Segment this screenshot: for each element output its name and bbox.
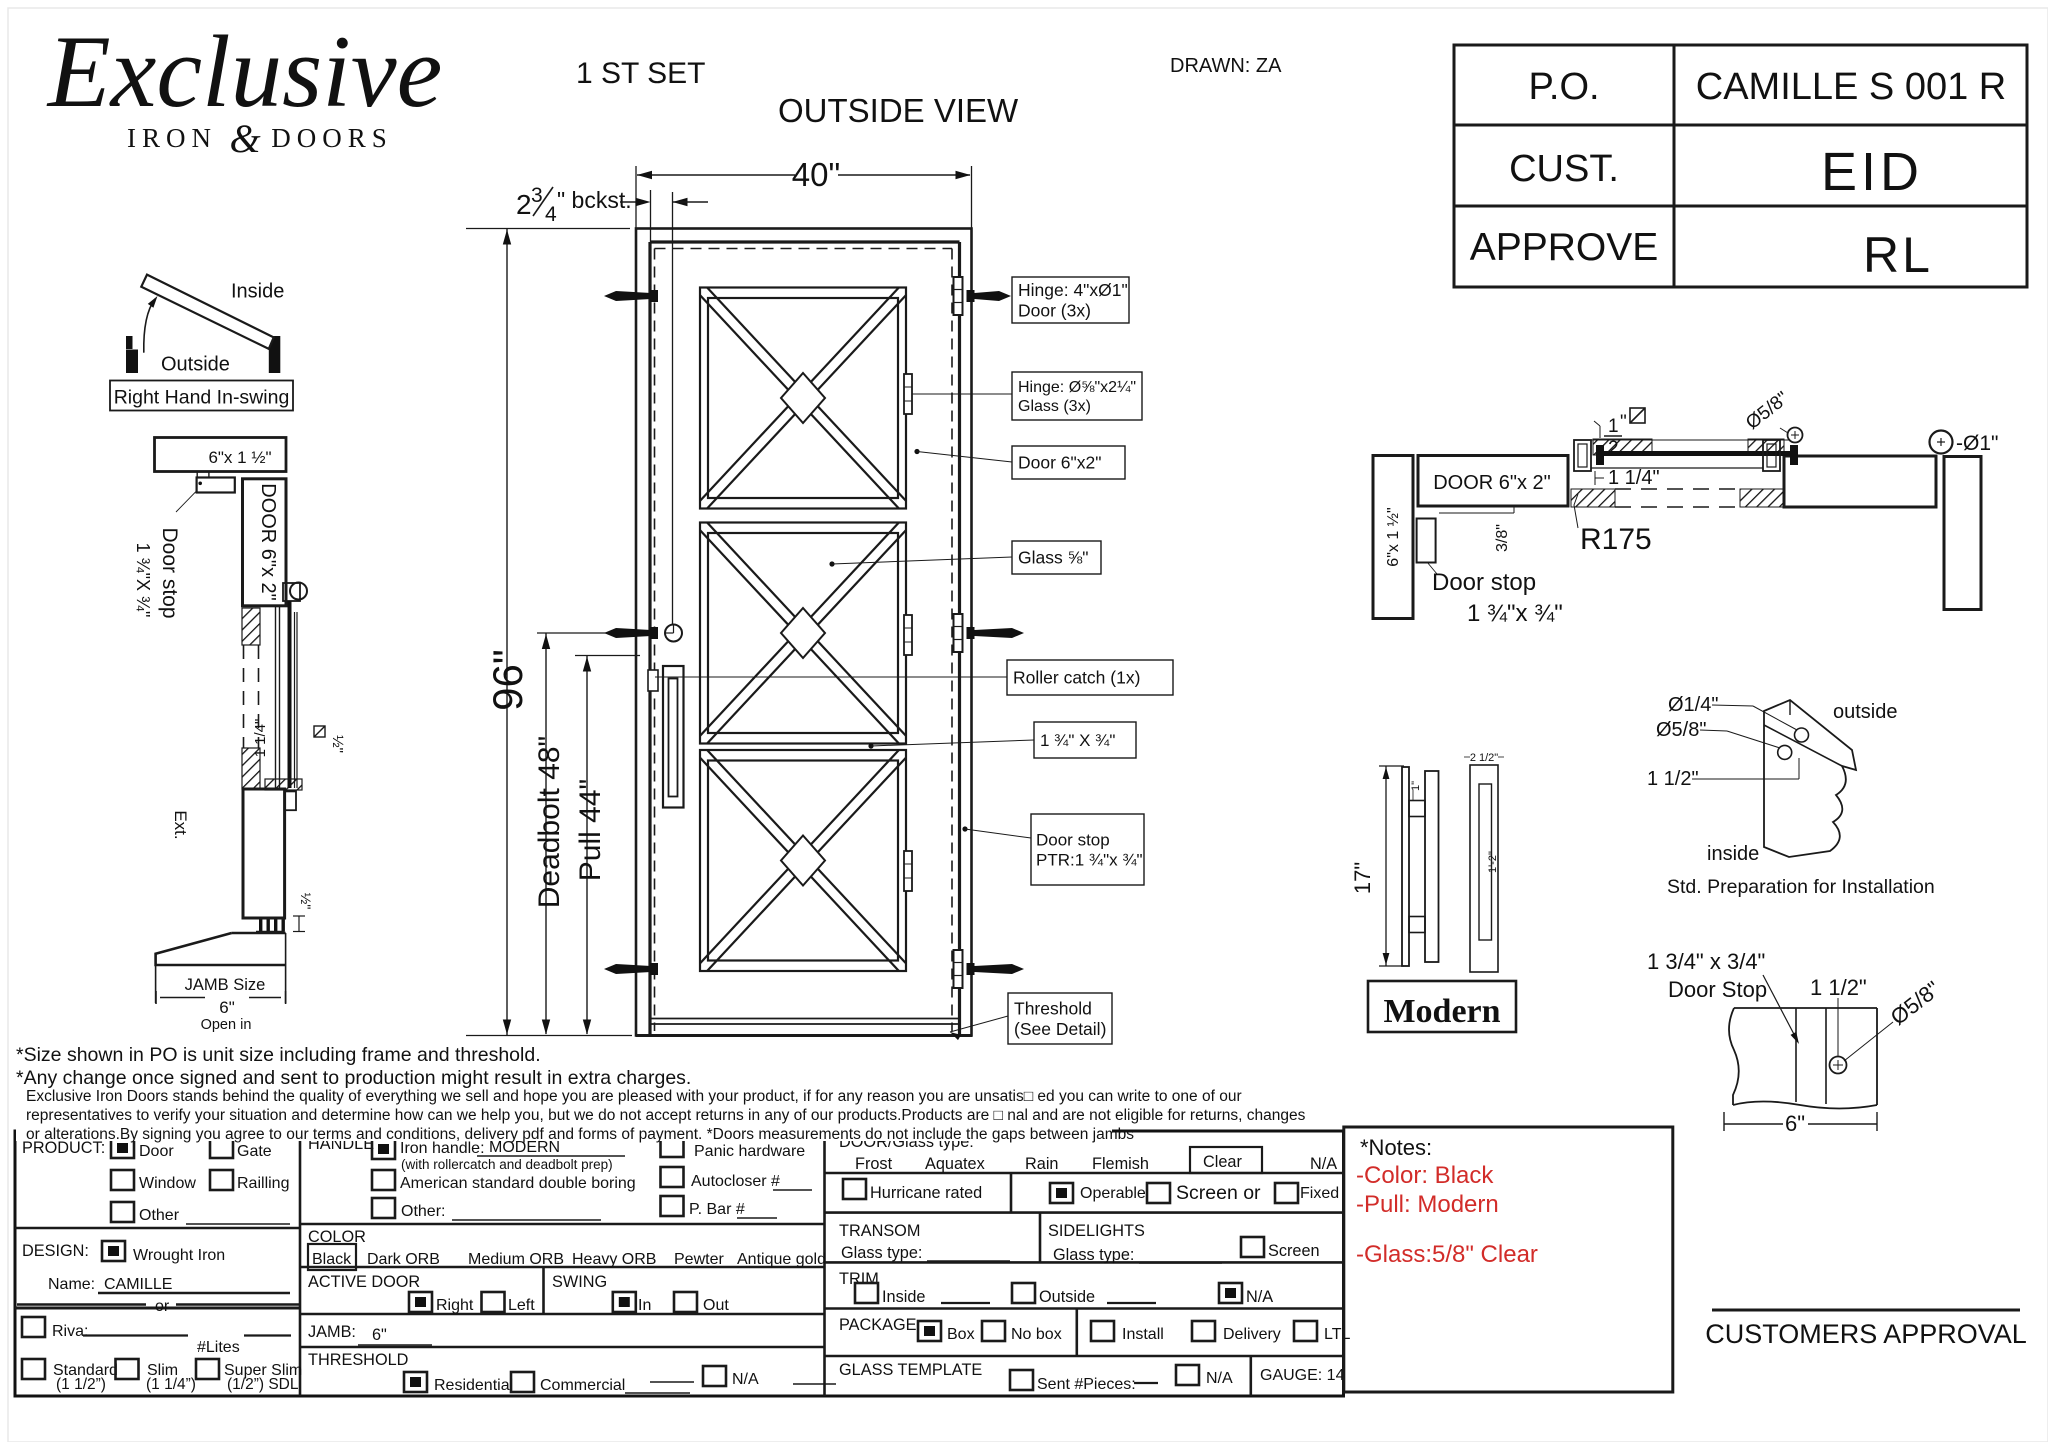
svg-text:1 1/4": 1 1/4" [1608, 467, 1660, 489]
svg-text:Hurricane rated: Hurricane rated [870, 1184, 982, 1202]
svg-text:DOORS: DOORS [271, 123, 393, 153]
svg-text:2: 2 [1608, 438, 1619, 459]
svg-text:R175: R175 [1580, 523, 1652, 556]
svg-text:½": ½" [329, 735, 346, 753]
svg-text:40": 40" [792, 156, 840, 193]
svg-text:Inside: Inside [882, 1288, 925, 1306]
svg-text:inside: inside [1707, 843, 1759, 865]
svg-text:Glass (3x): Glass (3x) [1018, 398, 1091, 415]
svg-text:Box: Box [947, 1326, 975, 1343]
svg-text:CAMILLE: CAMILLE [104, 1276, 172, 1293]
svg-text:P.O.: P.O. [1528, 66, 1599, 108]
svg-text:-Ø1": -Ø1" [1956, 432, 1998, 455]
svg-text:American standard double borin: American standard double boring [400, 1175, 636, 1192]
svg-text:Riva:: Riva: [52, 1323, 88, 1340]
svg-text:Door (3x): Door (3x) [1018, 300, 1091, 320]
svg-text:OUTSIDE VIEW: OUTSIDE VIEW [778, 92, 1019, 129]
svg-text:Door stop: Door stop [1036, 830, 1110, 849]
svg-text:Threshold: Threshold [1014, 998, 1092, 1018]
svg-text:Door stop: Door stop [158, 527, 181, 618]
svg-text:4: 4 [545, 203, 557, 226]
svg-text:96": 96" [484, 649, 531, 711]
svg-text:Name:: Name: [48, 1276, 95, 1293]
svg-text:SWING: SWING [552, 1273, 607, 1291]
svg-text:Inside: Inside [231, 281, 284, 303]
svg-text:THRESHOLD: THRESHOLD [308, 1351, 408, 1369]
svg-text:(1 1/4”): (1 1/4”) [146, 1376, 196, 1393]
svg-text:Ø5/8": Ø5/8" [1656, 719, 1706, 741]
svg-text:6": 6" [219, 998, 235, 1017]
svg-text:17": 17" [1350, 862, 1375, 894]
svg-text:or: or [155, 1298, 170, 1315]
svg-text:Hinge: 4"xØ1": Hinge: 4"xØ1" [1018, 280, 1128, 300]
svg-text:CUST.: CUST. [1509, 148, 1619, 190]
svg-text:Rain: Rain [1025, 1155, 1059, 1173]
svg-text:P. Bar #: P. Bar # [689, 1201, 745, 1218]
svg-text:Railling: Railling [237, 1175, 289, 1192]
svg-text:TRANSOM: TRANSOM [839, 1222, 920, 1240]
svg-text:RL: RL [1863, 227, 1933, 283]
svg-text:Right Hand In-swing: Right Hand In-swing [114, 387, 290, 409]
svg-text:Commercial: Commercial [540, 1377, 625, 1394]
svg-text:GLASS TEMPLATE: GLASS TEMPLATE [839, 1361, 982, 1379]
svg-text:DOOR 6"x 2": DOOR 6"x 2" [1433, 472, 1551, 494]
svg-text:JAMB Size: JAMB Size [185, 976, 266, 994]
svg-text:(1 1/2”): (1 1/2”) [56, 1376, 106, 1393]
svg-text:Black: Black [312, 1251, 352, 1268]
svg-text:Install: Install [1122, 1326, 1164, 1343]
svg-text:Deadbolt 48": Deadbolt 48" [533, 736, 566, 908]
svg-text:&: & [229, 116, 260, 161]
svg-text:½": ½" [298, 893, 314, 910]
svg-text:Door Stop: Door Stop [1668, 977, 1767, 1002]
svg-text:Ø1/4": Ø1/4" [1668, 694, 1718, 716]
svg-text:#Lites: #Lites [197, 1339, 240, 1356]
svg-text:Std. Preparation for Installat: Std. Preparation for Installation [1667, 876, 1935, 898]
svg-text:Heavy ORB: Heavy ORB [572, 1251, 656, 1268]
svg-text:Glass type:: Glass type: [841, 1244, 922, 1262]
svg-text:PACKAGE: PACKAGE [839, 1316, 917, 1334]
svg-text:1'-2": 1'-2" [1487, 851, 1499, 873]
svg-text:CUSTOMERS APPROVAL: CUSTOMERS APPROVAL [1705, 1319, 2027, 1349]
svg-text:Glass ⅝": Glass ⅝" [1018, 548, 1088, 568]
svg-text:*Any change once signed and se: *Any change once signed and sent to prod… [16, 1067, 691, 1089]
svg-text:Left: Left [508, 1297, 535, 1314]
svg-text:Residential: Residential [434, 1377, 513, 1394]
svg-text:Door: Door [139, 1143, 174, 1160]
svg-text:1 ¾"X ¾": 1 ¾"X ¾" [133, 543, 153, 618]
svg-text:Fixed: Fixed [1300, 1185, 1339, 1202]
svg-text:No box: No box [1011, 1326, 1062, 1343]
svg-text:GAUGE: 14: GAUGE: 14 [1260, 1367, 1345, 1384]
svg-text:or alterations.By signing you: or alterations.By signing you agree to o… [26, 1126, 1134, 1143]
svg-text:Door 6"x2": Door 6"x2" [1018, 453, 1101, 473]
svg-text:TRIM: TRIM [839, 1270, 879, 1288]
svg-text:6": 6" [1785, 1111, 1805, 1136]
svg-text:2: 2 [516, 189, 532, 220]
svg-text:Autocloser #: Autocloser # [691, 1173, 780, 1190]
svg-text:Delivery: Delivery [1223, 1326, 1281, 1343]
svg-text:(with rollercatch and deadbolt: (with rollercatch and deadbolt prep) [401, 1157, 613, 1172]
svg-text:DOOR 6"x 2": DOOR 6"x 2" [257, 483, 279, 601]
svg-text:Window: Window [139, 1175, 196, 1192]
svg-text:DRAWN: ZA: DRAWN: ZA [1170, 55, 1282, 77]
svg-text:Right: Right [436, 1297, 474, 1314]
svg-text:1 3/4" x 3/4": 1 3/4" x 3/4" [1647, 949, 1765, 974]
svg-text:6": 6" [372, 1326, 387, 1344]
svg-text:Aquatex: Aquatex [925, 1155, 985, 1173]
svg-text:": " [1620, 412, 1627, 433]
svg-text:2 1/2": 2 1/2" [1470, 752, 1498, 764]
svg-text:Exclusive Iron Doors stands be: Exclusive Iron Doors stands behind the q… [26, 1088, 1242, 1105]
svg-text:APPROVE: APPROVE [1470, 226, 1659, 269]
svg-text:representatives to verify your: representatives to verify your situation… [26, 1107, 1306, 1124]
svg-text:-Pull: Modern: -Pull: Modern [1356, 1191, 1499, 1218]
svg-text:Panic hardware: Panic hardware [694, 1143, 805, 1160]
svg-text:Outside: Outside [1039, 1288, 1095, 1306]
svg-text:1 1/2": 1 1/2" [1810, 975, 1867, 1000]
svg-text:" bckst.: " bckst. [557, 187, 632, 213]
svg-text:Ext.: Ext. [171, 810, 190, 839]
svg-text:JAMB:: JAMB: [308, 1323, 356, 1341]
svg-text:Frost: Frost [855, 1155, 893, 1173]
svg-text:Other: Other [139, 1207, 180, 1224]
svg-text:Open in: Open in [201, 1017, 252, 1033]
svg-text:Medium ORB: Medium ORB [468, 1251, 564, 1268]
svg-text:Glass type:: Glass type: [1053, 1246, 1134, 1264]
svg-text:Door stop: Door stop [1432, 569, 1536, 596]
svg-text:*Size shown in PO is unit size: *Size shown in PO is unit size including… [16, 1044, 541, 1066]
svg-text:N/A: N/A [1206, 1370, 1233, 1387]
svg-text:1 ¾" X ¾": 1 ¾" X ¾" [1040, 731, 1115, 750]
svg-text:6"x 1 ½": 6"x 1 ½" [208, 448, 271, 467]
svg-text:(1/2”) SDL: (1/2”) SDL [227, 1376, 299, 1393]
svg-text:PTR:1 ¾"x ¾": PTR:1 ¾"x ¾" [1036, 850, 1143, 869]
svg-text:1 ¾"x ¾": 1 ¾"x ¾" [1467, 600, 1563, 627]
svg-text:1": 1" [1410, 781, 1422, 791]
svg-text:-Color: Black: -Color: Black [1356, 1162, 1494, 1189]
svg-text:Clear: Clear [1203, 1153, 1242, 1171]
svg-text:EID: EID [1821, 142, 1923, 202]
svg-text:Pewter: Pewter [674, 1251, 724, 1268]
svg-text:Modern: Modern [1383, 993, 1500, 1030]
svg-text:3/8": 3/8" [1494, 524, 1511, 552]
svg-text:-Glass:5/8" Clear: -Glass:5/8" Clear [1356, 1241, 1538, 1268]
svg-text:N/A: N/A [1246, 1288, 1273, 1306]
svg-text:Gate: Gate [237, 1143, 272, 1160]
svg-text:Flemish: Flemish [1092, 1155, 1149, 1173]
svg-text:Roller catch (1x): Roller catch (1x) [1013, 668, 1140, 688]
svg-text:1 1/2": 1 1/2" [1647, 768, 1699, 790]
svg-text:In: In [638, 1297, 651, 1314]
svg-text:(See Detail): (See Detail) [1014, 1019, 1106, 1039]
svg-text:N/A: N/A [732, 1371, 759, 1388]
svg-text:outside: outside [1833, 701, 1898, 723]
svg-text:Screen or: Screen or [1176, 1182, 1261, 1204]
svg-text:1: 1 [1608, 416, 1619, 437]
svg-text:Out: Out [703, 1297, 729, 1314]
svg-text:1 1/4": 1 1/4" [252, 719, 269, 758]
svg-text:CAMILLE S 001 R: CAMILLE S 001 R [1696, 66, 2006, 108]
svg-text:Dark ORB: Dark ORB [367, 1251, 440, 1268]
svg-text:Hinge: Ø⅝"x2¼": Hinge: Ø⅝"x2¼" [1018, 379, 1136, 396]
svg-text:N/A: N/A [1310, 1155, 1337, 1173]
svg-text:Operable: Operable [1080, 1185, 1146, 1202]
svg-text:Pull 44": Pull 44" [574, 779, 607, 881]
svg-text:1 ST SET: 1 ST SET [576, 57, 706, 90]
svg-text:Sent #Pieces:: Sent #Pieces: [1037, 1376, 1136, 1393]
svg-text:*Notes:: *Notes: [1360, 1135, 1432, 1160]
svg-text:Outside: Outside [161, 354, 230, 376]
svg-text:IRON: IRON [127, 123, 217, 153]
svg-text:LTL: LTL [1324, 1326, 1350, 1343]
svg-text:Exclusive: Exclusive [46, 15, 443, 129]
svg-text:6"x 1 ½": 6"x 1 ½" [1385, 507, 1402, 566]
svg-text:DESIGN:: DESIGN: [22, 1242, 89, 1260]
svg-text:SIDELIGHTS: SIDELIGHTS [1048, 1222, 1145, 1240]
svg-text:Wrought Iron: Wrought Iron [133, 1247, 225, 1264]
svg-text:Antique gold: Antique gold [737, 1251, 826, 1268]
svg-text:Other:: Other: [401, 1203, 445, 1220]
svg-text:Screen: Screen [1268, 1242, 1320, 1260]
svg-text:ACTIVE DOOR: ACTIVE DOOR [308, 1273, 420, 1291]
